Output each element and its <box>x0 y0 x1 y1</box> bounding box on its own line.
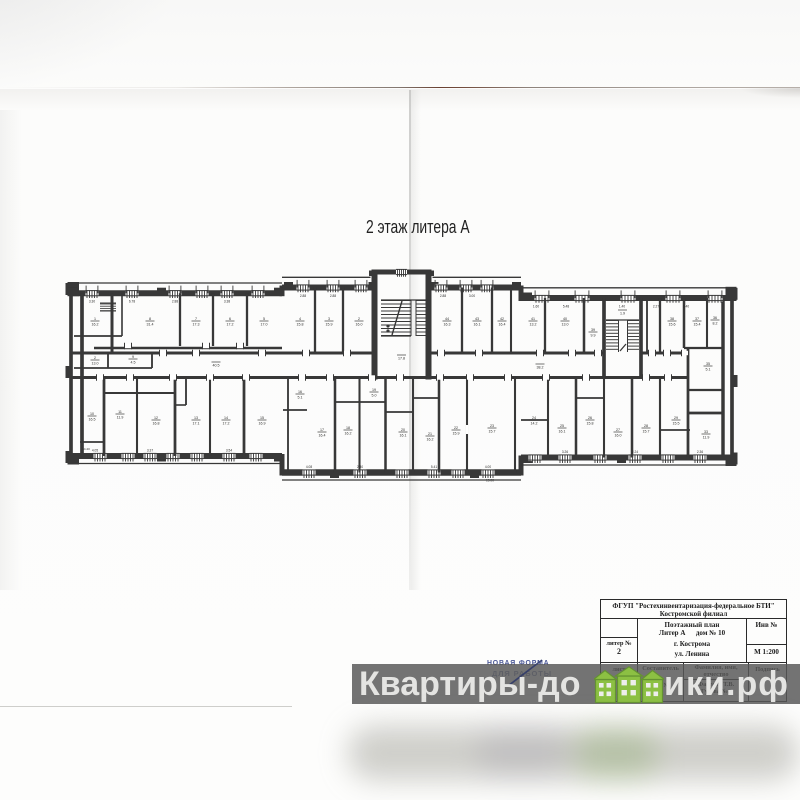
svg-text:2.88: 2.88 <box>300 294 306 298</box>
svg-text:16.5: 16.5 <box>89 417 96 421</box>
svg-text:15.9: 15.9 <box>326 322 333 326</box>
svg-text:27: 27 <box>616 428 620 432</box>
svg-text:17.8: 17.8 <box>398 356 405 360</box>
svg-text:4.08: 4.08 <box>306 465 312 469</box>
svg-text:42: 42 <box>500 317 504 321</box>
svg-text:15.8: 15.8 <box>587 421 594 425</box>
svg-text:13.2: 13.2 <box>530 322 537 326</box>
svg-text:22: 22 <box>454 426 458 430</box>
svg-text:16.2: 16.2 <box>345 431 352 435</box>
svg-text:44: 44 <box>445 317 449 321</box>
svg-text:21: 21 <box>428 432 432 436</box>
svg-text:5.48: 5.48 <box>563 305 569 309</box>
svg-text:15.7: 15.7 <box>489 429 496 433</box>
svg-text:1.40: 1.40 <box>619 305 625 309</box>
svg-text:17.1: 17.1 <box>193 421 200 425</box>
svg-text:10: 10 <box>90 412 94 416</box>
svg-text:38.2: 38.2 <box>537 365 544 369</box>
svg-text:40: 40 <box>563 317 567 321</box>
svg-text:16.3: 16.3 <box>444 322 451 326</box>
svg-text:3.54: 3.54 <box>226 449 232 453</box>
svg-text:15.8: 15.8 <box>297 322 304 326</box>
svg-text:2.24: 2.24 <box>632 450 638 454</box>
svg-text:13.0: 13.0 <box>92 361 99 365</box>
svg-text:2.36: 2.36 <box>697 450 703 454</box>
svg-text:16.2: 16.2 <box>92 322 99 326</box>
svg-text:2: 2 <box>358 317 360 321</box>
svg-text:23: 23 <box>490 424 494 428</box>
svg-text:1.9: 1.9 <box>620 311 625 315</box>
svg-text:5.1: 5.1 <box>706 367 711 371</box>
svg-text:3: 3 <box>328 317 330 321</box>
svg-text:15.4: 15.4 <box>694 322 701 326</box>
svg-text:12: 12 <box>154 416 158 420</box>
svg-text:39: 39 <box>591 328 595 332</box>
svg-text:19.00: 19.00 <box>486 479 494 483</box>
svg-text:16.9: 16.9 <box>259 421 266 425</box>
svg-text:35: 35 <box>706 362 710 366</box>
svg-text:11: 11 <box>118 410 122 414</box>
svg-text:16.1: 16.1 <box>400 433 407 437</box>
svg-text:4.5: 4.5 <box>131 360 136 364</box>
svg-text:29: 29 <box>674 416 678 420</box>
svg-text:19: 19 <box>372 388 376 392</box>
svg-text:36: 36 <box>713 316 717 320</box>
svg-text:11.9: 11.9 <box>117 415 124 419</box>
svg-text:5.0: 5.0 <box>372 393 377 397</box>
svg-text:37: 37 <box>695 317 699 321</box>
svg-text:26: 26 <box>588 416 592 420</box>
svg-text:14: 14 <box>224 416 228 420</box>
svg-text:16.4: 16.4 <box>319 433 326 437</box>
svg-text:17: 17 <box>320 428 324 432</box>
svg-text:16.0: 16.0 <box>615 433 622 437</box>
svg-text:1.60: 1.60 <box>533 305 539 309</box>
svg-text:28: 28 <box>644 424 648 428</box>
svg-text:20: 20 <box>401 428 405 432</box>
svg-text:16.8: 16.8 <box>153 421 160 425</box>
svg-text:3.00: 3.00 <box>469 294 475 298</box>
svg-text:5.41: 5.41 <box>431 465 437 469</box>
svg-text:17.2: 17.2 <box>227 322 234 326</box>
svg-text:3.26: 3.26 <box>562 450 568 454</box>
svg-text:17.2: 17.2 <box>223 421 230 425</box>
svg-text:14.2: 14.2 <box>531 421 538 425</box>
svg-text:1: 1 <box>94 317 96 321</box>
svg-text:18: 18 <box>346 426 350 430</box>
svg-text:13: 13 <box>194 416 198 420</box>
svg-text:16.1: 16.1 <box>474 322 481 326</box>
svg-text:3.37: 3.37 <box>147 449 153 453</box>
svg-text:2: 2 <box>94 356 96 360</box>
svg-text:15.9: 15.9 <box>453 431 460 435</box>
svg-text:11.9: 11.9 <box>703 435 710 439</box>
svg-text:2.30: 2.30 <box>357 465 363 469</box>
svg-text:6.78: 6.78 <box>129 300 135 304</box>
svg-text:7: 7 <box>195 317 197 321</box>
svg-text:16.0: 16.0 <box>356 322 363 326</box>
svg-text:5: 5 <box>263 317 265 321</box>
svg-text:17.3: 17.3 <box>193 322 200 326</box>
svg-text:8.2: 8.2 <box>713 321 718 325</box>
svg-text:15.5: 15.5 <box>673 421 680 425</box>
svg-text:31.4: 31.4 <box>147 322 154 326</box>
svg-text:15: 15 <box>260 416 264 420</box>
svg-text:13.0: 13.0 <box>562 322 569 326</box>
svg-text:2.88: 2.88 <box>330 294 336 298</box>
svg-text:8: 8 <box>149 317 151 321</box>
svg-text:6: 6 <box>229 317 231 321</box>
svg-text:15.7: 15.7 <box>643 429 650 433</box>
svg-text:40.5: 40.5 <box>213 363 220 367</box>
svg-text:14.40: 14.40 <box>82 447 90 451</box>
svg-text:38: 38 <box>670 317 674 321</box>
svg-text:3.30: 3.30 <box>89 300 95 304</box>
svg-text:41: 41 <box>531 317 535 321</box>
svg-text:5.1: 5.1 <box>298 395 303 399</box>
svg-text:17.0: 17.0 <box>261 322 268 326</box>
svg-text:3.40: 3.40 <box>683 305 689 309</box>
svg-text:4: 4 <box>299 317 301 321</box>
svg-text:9.9: 9.9 <box>591 333 596 337</box>
svg-text:2.88: 2.88 <box>440 294 446 298</box>
svg-text:16.4: 16.4 <box>499 322 506 326</box>
svg-text:16.2: 16.2 <box>427 437 434 441</box>
svg-text:15.6: 15.6 <box>669 322 676 326</box>
svg-text:16.1: 16.1 <box>559 429 566 433</box>
svg-text:25: 25 <box>560 424 564 428</box>
svg-text:24: 24 <box>532 416 536 420</box>
svg-text:33: 33 <box>704 430 708 434</box>
svg-text:4.05: 4.05 <box>92 449 98 453</box>
svg-text:3.38: 3.38 <box>224 300 230 304</box>
svg-text:9: 9 <box>132 355 134 359</box>
svg-text:2.27: 2.27 <box>653 305 659 309</box>
svg-text:4.00: 4.00 <box>485 465 491 469</box>
svg-text:2.88: 2.88 <box>172 300 178 304</box>
svg-text:16: 16 <box>298 390 302 394</box>
svg-text:43: 43 <box>475 317 479 321</box>
